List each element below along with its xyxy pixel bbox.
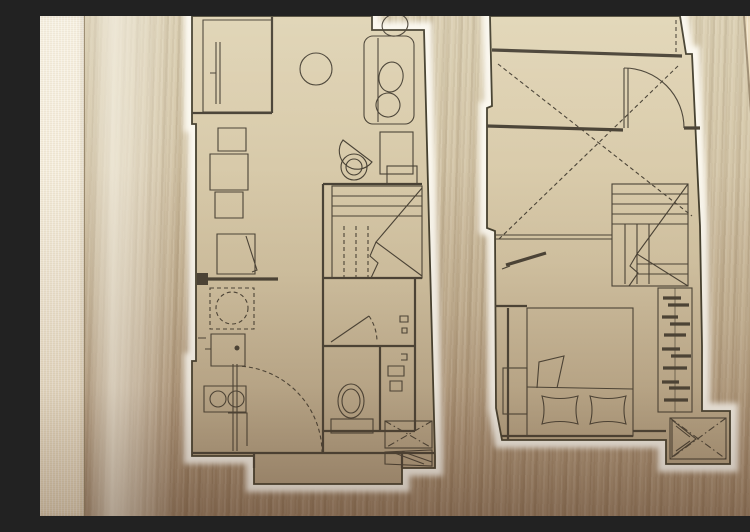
upper-level-plan: [487, 16, 730, 464]
metal-island-lower: [192, 16, 435, 484]
floor-plan-photo: [40, 16, 750, 516]
metal-island-upper: [487, 16, 730, 464]
sink-drain: [235, 346, 240, 351]
counter-end-block: [197, 273, 208, 285]
plate-edge-line: [744, 16, 750, 516]
lower-level-plan: [192, 16, 435, 484]
floor-plan-linework: [40, 16, 750, 516]
